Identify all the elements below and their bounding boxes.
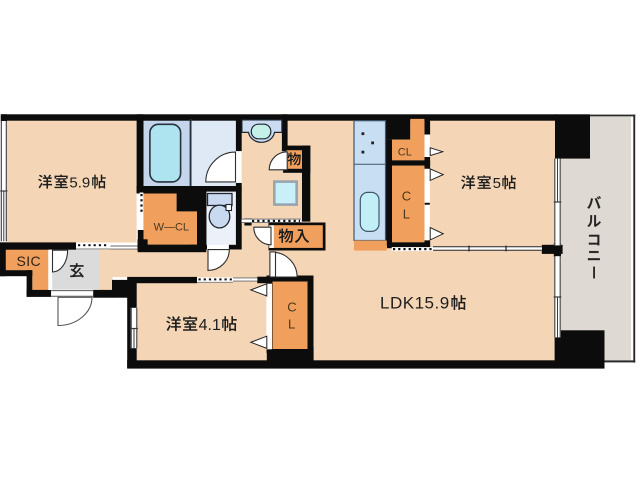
svg-text:L: L xyxy=(403,206,410,221)
svg-text:5: 5 xyxy=(493,175,501,192)
svg-text:LDK15.9: LDK15.9 xyxy=(380,294,450,313)
svg-text:5.9: 5.9 xyxy=(69,174,90,191)
svg-text:4.1: 4.1 xyxy=(199,317,221,334)
svg-text:C: C xyxy=(402,189,411,204)
svg-text:SIC: SIC xyxy=(17,253,42,269)
svg-text:C: C xyxy=(287,300,296,315)
svg-text:W—CL: W—CL xyxy=(154,222,189,234)
svg-text:L: L xyxy=(288,317,295,332)
svg-text:CL: CL xyxy=(398,147,412,159)
